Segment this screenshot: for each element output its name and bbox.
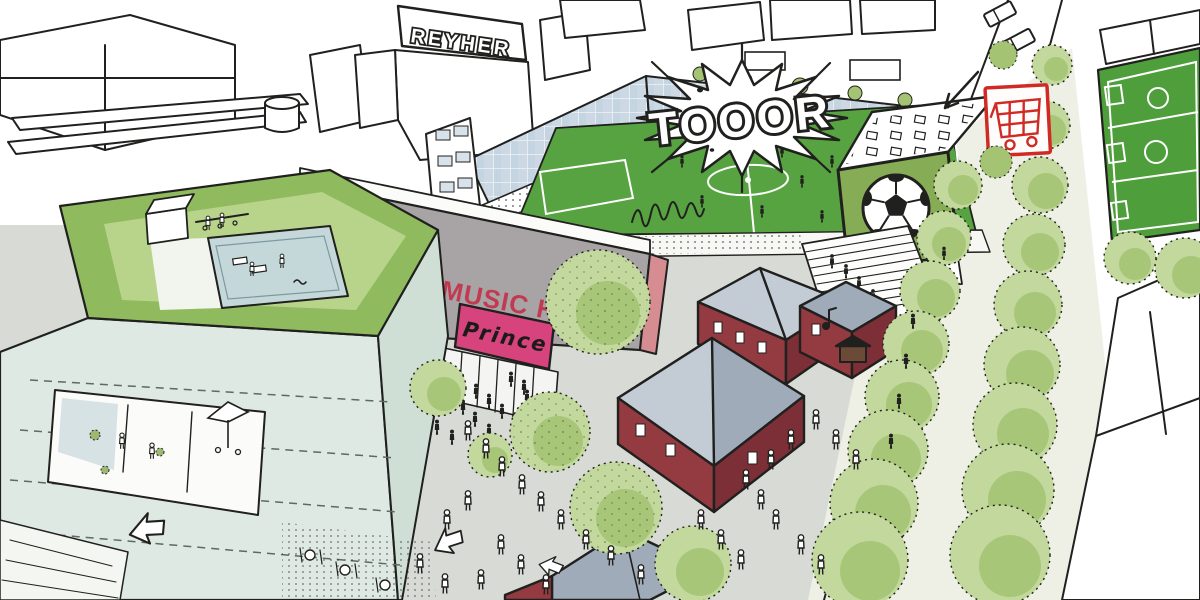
storage-cylinder [265, 97, 299, 132]
tree [510, 392, 590, 472]
shopping-cart-sign [985, 85, 1050, 156]
mini-pitches [1098, 48, 1200, 242]
tree [410, 360, 466, 416]
illustration-canvas: REYHER [0, 0, 1200, 600]
tree [546, 250, 650, 354]
mint-building [0, 170, 448, 600]
